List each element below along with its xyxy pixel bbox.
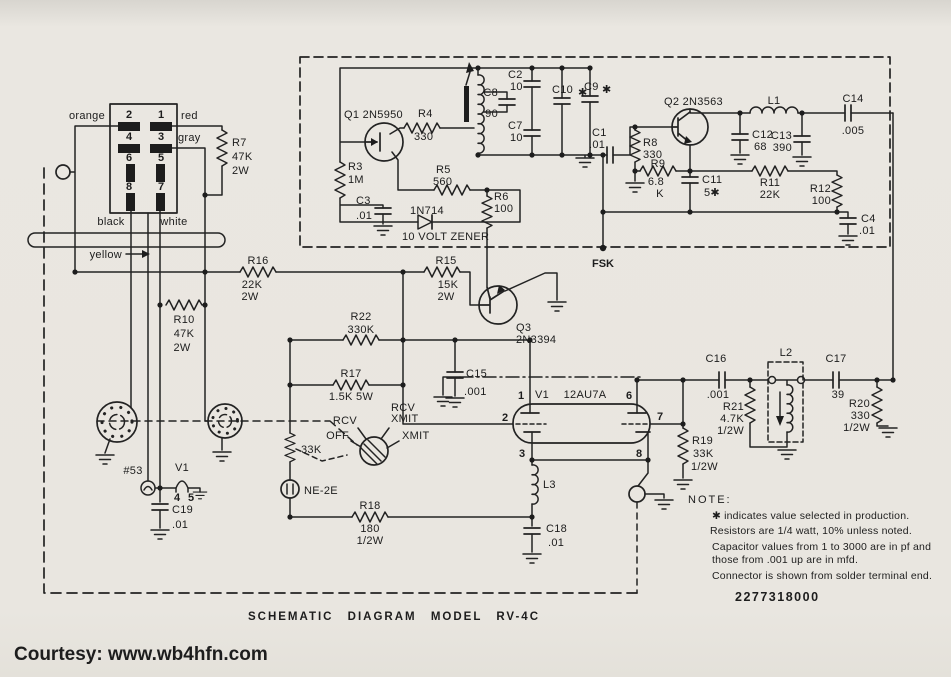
r4-name: R4 <box>418 108 433 120</box>
c9-star: ✱ <box>602 84 612 96</box>
r15-watt: 2W <box>437 291 454 303</box>
c14-name: C14 <box>842 93 863 105</box>
heater-name: V1 <box>175 462 189 474</box>
r16-value: 22K <box>242 279 263 291</box>
c1-value: .01 <box>589 139 605 151</box>
c8-value: 90 <box>485 108 498 120</box>
r15-value: 15K <box>438 279 459 291</box>
r20-watt: 1/2W <box>843 422 870 434</box>
c16-name: C16 <box>705 353 726 365</box>
r22-value: 330K <box>348 324 375 336</box>
c17-value: 39 <box>832 389 845 401</box>
inductor-l2 <box>768 362 805 442</box>
scanned-schematic-page: orange red gray black white yellow 2 1 4… <box>0 0 951 677</box>
tube-pin6: 6 <box>626 390 632 402</box>
pin-3: 3 <box>158 131 164 143</box>
pin-4: 4 <box>126 131 133 143</box>
transistor-q1 <box>365 123 403 161</box>
note-head: NOTE: <box>688 494 732 506</box>
courtesy-credit[interactable]: Courtesy: www.wb4hfn.com <box>14 644 268 665</box>
c7-value: 10 <box>510 132 523 144</box>
r9-value: 6.8 <box>648 176 664 188</box>
c16-value: .001 <box>707 389 730 401</box>
r18-name: R18 <box>359 500 380 512</box>
c14-value: .005 <box>842 125 865 137</box>
schematic-title: SCHEMATIC DIAGRAM MODEL RV-4C <box>248 611 540 623</box>
pilot-lamp-53 <box>141 481 155 495</box>
c2-value: 10 <box>510 81 523 93</box>
r7-value: 47K <box>232 151 253 163</box>
schematic-labels: orange red gray black white yellow 2 1 4… <box>69 69 876 549</box>
cable-entry-terminal <box>56 165 70 179</box>
pin-8: 8 <box>126 181 132 193</box>
wire-label-white: white <box>159 216 187 228</box>
c1-name: C1 <box>592 127 607 139</box>
inductor-l3 <box>532 465 538 504</box>
r19-name: R19 <box>692 435 713 447</box>
tube-pin8: 8 <box>636 448 642 460</box>
c12-value: 68 <box>754 141 767 153</box>
c10-name: C10 <box>552 84 573 96</box>
output-jack <box>629 486 645 502</box>
c4-name: C4 <box>861 213 876 225</box>
r18-watt: 1/2W <box>357 535 384 547</box>
r20-value: 330 <box>851 410 870 422</box>
r9-unit: K <box>656 188 664 200</box>
c15-name: C15 <box>466 368 487 380</box>
r5-name: R5 <box>436 164 451 176</box>
ne2e-label: NE-2E <box>304 485 338 497</box>
r6-name: R6 <box>494 191 509 203</box>
tube-name: V1 <box>535 389 549 401</box>
note-line-2: Resistors are 1/4 watt, 10% unless noted… <box>710 525 912 537</box>
transistor-q2 <box>672 109 708 145</box>
r10-value: 47K <box>174 328 195 340</box>
transistor-q3 <box>479 285 517 324</box>
note-line-3: Capacitor values from 1 to 3000 are in p… <box>712 541 931 553</box>
q3-type: 2N3394 <box>516 334 556 346</box>
pin-7: 7 <box>158 181 164 193</box>
r16-name: R16 <box>247 255 268 267</box>
inductor-l1 <box>750 107 798 113</box>
q1-label: Q1 2N5950 <box>344 109 403 121</box>
r12-name: R12 <box>810 183 831 195</box>
q2-label: Q2 2N3563 <box>664 96 723 108</box>
r19-value: 33K <box>693 448 714 460</box>
wire-label-yellow: yellow <box>90 249 122 261</box>
zener-desc: 10 VOLT ZENER <box>402 231 489 243</box>
c3-value: .01 <box>356 210 372 222</box>
zener-diode-1n714 <box>418 215 432 229</box>
lamp-label: #53 <box>123 465 142 477</box>
r22-name: R22 <box>350 311 371 323</box>
part-number: 2277318000 <box>735 590 820 604</box>
r21-watt: 1/2W <box>717 425 744 437</box>
pin-1: 1 <box>158 109 164 121</box>
r5-value: 560 <box>433 176 452 188</box>
tube-pin7: 7 <box>657 411 663 423</box>
c17-name: C17 <box>825 353 846 365</box>
pin-5: 5 <box>158 152 164 164</box>
fsk-terminal <box>600 245 606 251</box>
r12-value: 100 <box>812 195 831 207</box>
r19-watt: 1/2W <box>691 461 718 473</box>
note-block: NOTE: ✱ indicates value selected in prod… <box>688 494 932 604</box>
pin-2: 2 <box>126 109 132 121</box>
wire-label-red: red <box>181 110 198 122</box>
oscillator-coil <box>464 62 484 153</box>
r6-value: 100 <box>494 203 513 215</box>
tube-pin1: 1 <box>518 390 524 402</box>
r17-name: R17 <box>340 368 361 380</box>
cable-harness <box>28 233 225 258</box>
wire-label-orange: orange <box>69 110 105 122</box>
note-line-5: Connector is shown from solder terminal … <box>712 570 932 582</box>
wire-label-black: black <box>97 216 124 228</box>
switch-pos-rcvxmit-2[interactable]: XMIT <box>391 413 418 425</box>
c18-value: .01 <box>548 537 564 549</box>
r7-watt: 2W <box>232 165 249 177</box>
c13-name: C13 <box>771 130 792 142</box>
ground-symbols <box>96 155 897 563</box>
l1-label: L1 <box>768 95 781 107</box>
r9-name: R9 <box>651 158 666 170</box>
switch-pos-off[interactable]: OFF <box>326 430 349 442</box>
switch-pos-rcv[interactable]: RCV <box>333 415 357 427</box>
r11-name: R11 <box>760 177 780 189</box>
r4-value: 330 <box>414 131 433 143</box>
pin-6: 6 <box>126 152 132 164</box>
fsk-label: FSK <box>592 258 614 270</box>
r17-value: 1.5K 5W <box>329 391 374 403</box>
c7-name: C7 <box>508 120 523 132</box>
l3-label: L3 <box>543 479 556 491</box>
switch-pos-xmit[interactable]: XMIT <box>402 430 429 442</box>
c3-name: C3 <box>356 195 371 207</box>
r7-name: R7 <box>232 137 247 149</box>
heater-pin5: 5 <box>188 492 194 504</box>
c18-name: C18 <box>546 523 567 535</box>
tube-socket-left <box>97 402 137 442</box>
tube-type: 12AU7A <box>564 389 607 401</box>
note-line-4: those from .001 up are in mfd. <box>712 554 858 566</box>
wire-label-gray: gray <box>178 132 201 144</box>
c19-name: C19 <box>172 504 193 516</box>
r18-value: 180 <box>360 523 379 535</box>
octal-connector <box>110 104 177 213</box>
tube-pin3: 3 <box>519 448 525 460</box>
c13-value: 390 <box>773 142 792 154</box>
r3-name: R3 <box>348 161 363 173</box>
c11-value: 5✱ <box>704 187 720 199</box>
schematic-canvas: orange red gray black white yellow 2 1 4… <box>0 0 951 677</box>
neon-bulb-ne2e <box>281 480 299 498</box>
r10-watt: 2W <box>173 342 190 354</box>
l2-label: L2 <box>780 347 793 359</box>
r3-value: 1M <box>348 174 364 186</box>
r21-name: R21 <box>723 401 744 413</box>
r16-watt: 2W <box>241 291 258 303</box>
tube-v1-12au7a <box>513 404 650 443</box>
r10-name: R10 <box>173 314 194 326</box>
c15-value: .001 <box>464 386 487 398</box>
switch-resistor-value: 33K <box>301 444 322 456</box>
q3-name: Q3 <box>516 322 531 334</box>
capacitors <box>152 81 856 534</box>
c11-name: C11 <box>702 174 722 186</box>
tube-pin2: 2 <box>502 412 508 424</box>
c4-value: .01 <box>859 225 875 237</box>
c19-value: .01 <box>172 519 188 531</box>
c8-name: C8 <box>483 87 498 99</box>
c2-name: C2 <box>508 69 523 81</box>
r15-name: R15 <box>435 255 456 267</box>
r20-name: R20 <box>849 398 870 410</box>
c9-name: C9 <box>584 81 599 93</box>
r8-name: R8 <box>643 137 658 149</box>
mode-rotary-switch[interactable] <box>351 428 399 465</box>
heater-v1 <box>176 481 188 492</box>
zener-part: 1N714 <box>410 205 444 217</box>
heater-pin4: 4 <box>174 492 181 504</box>
r11-value: 22K <box>760 189 781 201</box>
r21-value: 4.7K <box>720 413 744 425</box>
note-line-1: ✱ indicates value selected in production… <box>712 510 909 522</box>
tube-socket-right <box>208 404 242 438</box>
